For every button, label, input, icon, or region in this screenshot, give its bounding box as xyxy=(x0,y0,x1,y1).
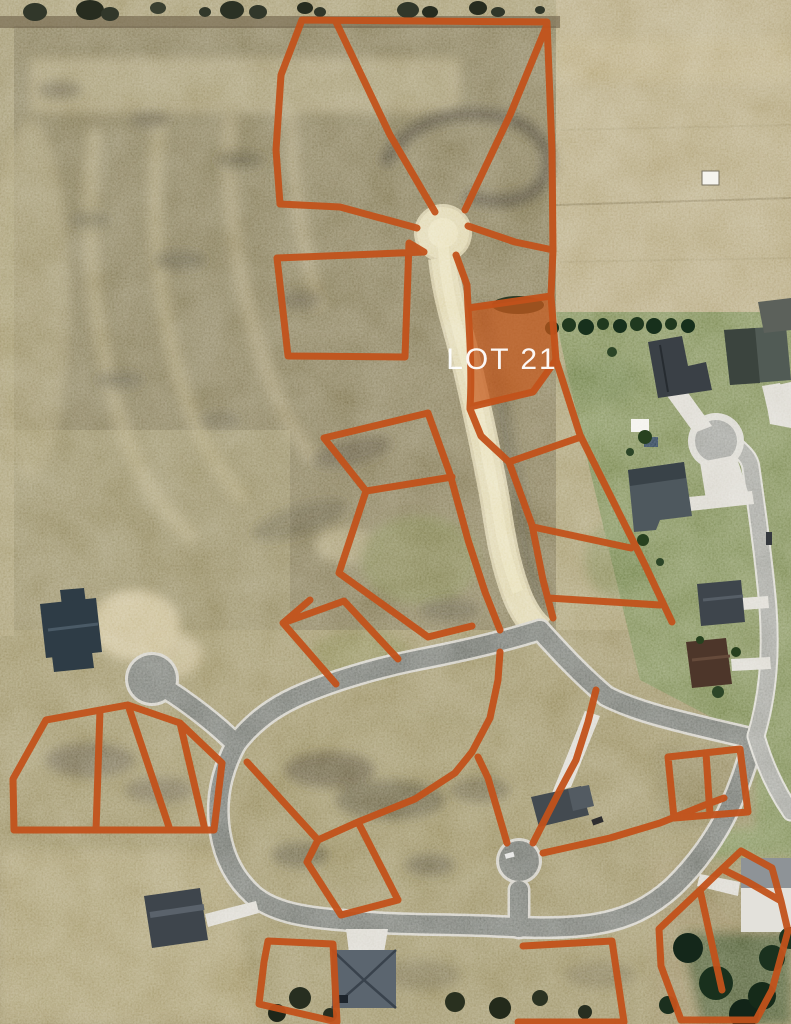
house-roof xyxy=(697,580,745,626)
house-roof xyxy=(144,888,208,948)
house-roof xyxy=(332,950,396,1008)
field-shed xyxy=(702,171,719,185)
aerial-photo: LOT 21 xyxy=(0,0,791,1024)
lot-21-label: LOT 21 xyxy=(446,343,558,376)
house-roof xyxy=(686,638,732,688)
aerial-plat-map: LOT 21 xyxy=(0,0,791,1024)
